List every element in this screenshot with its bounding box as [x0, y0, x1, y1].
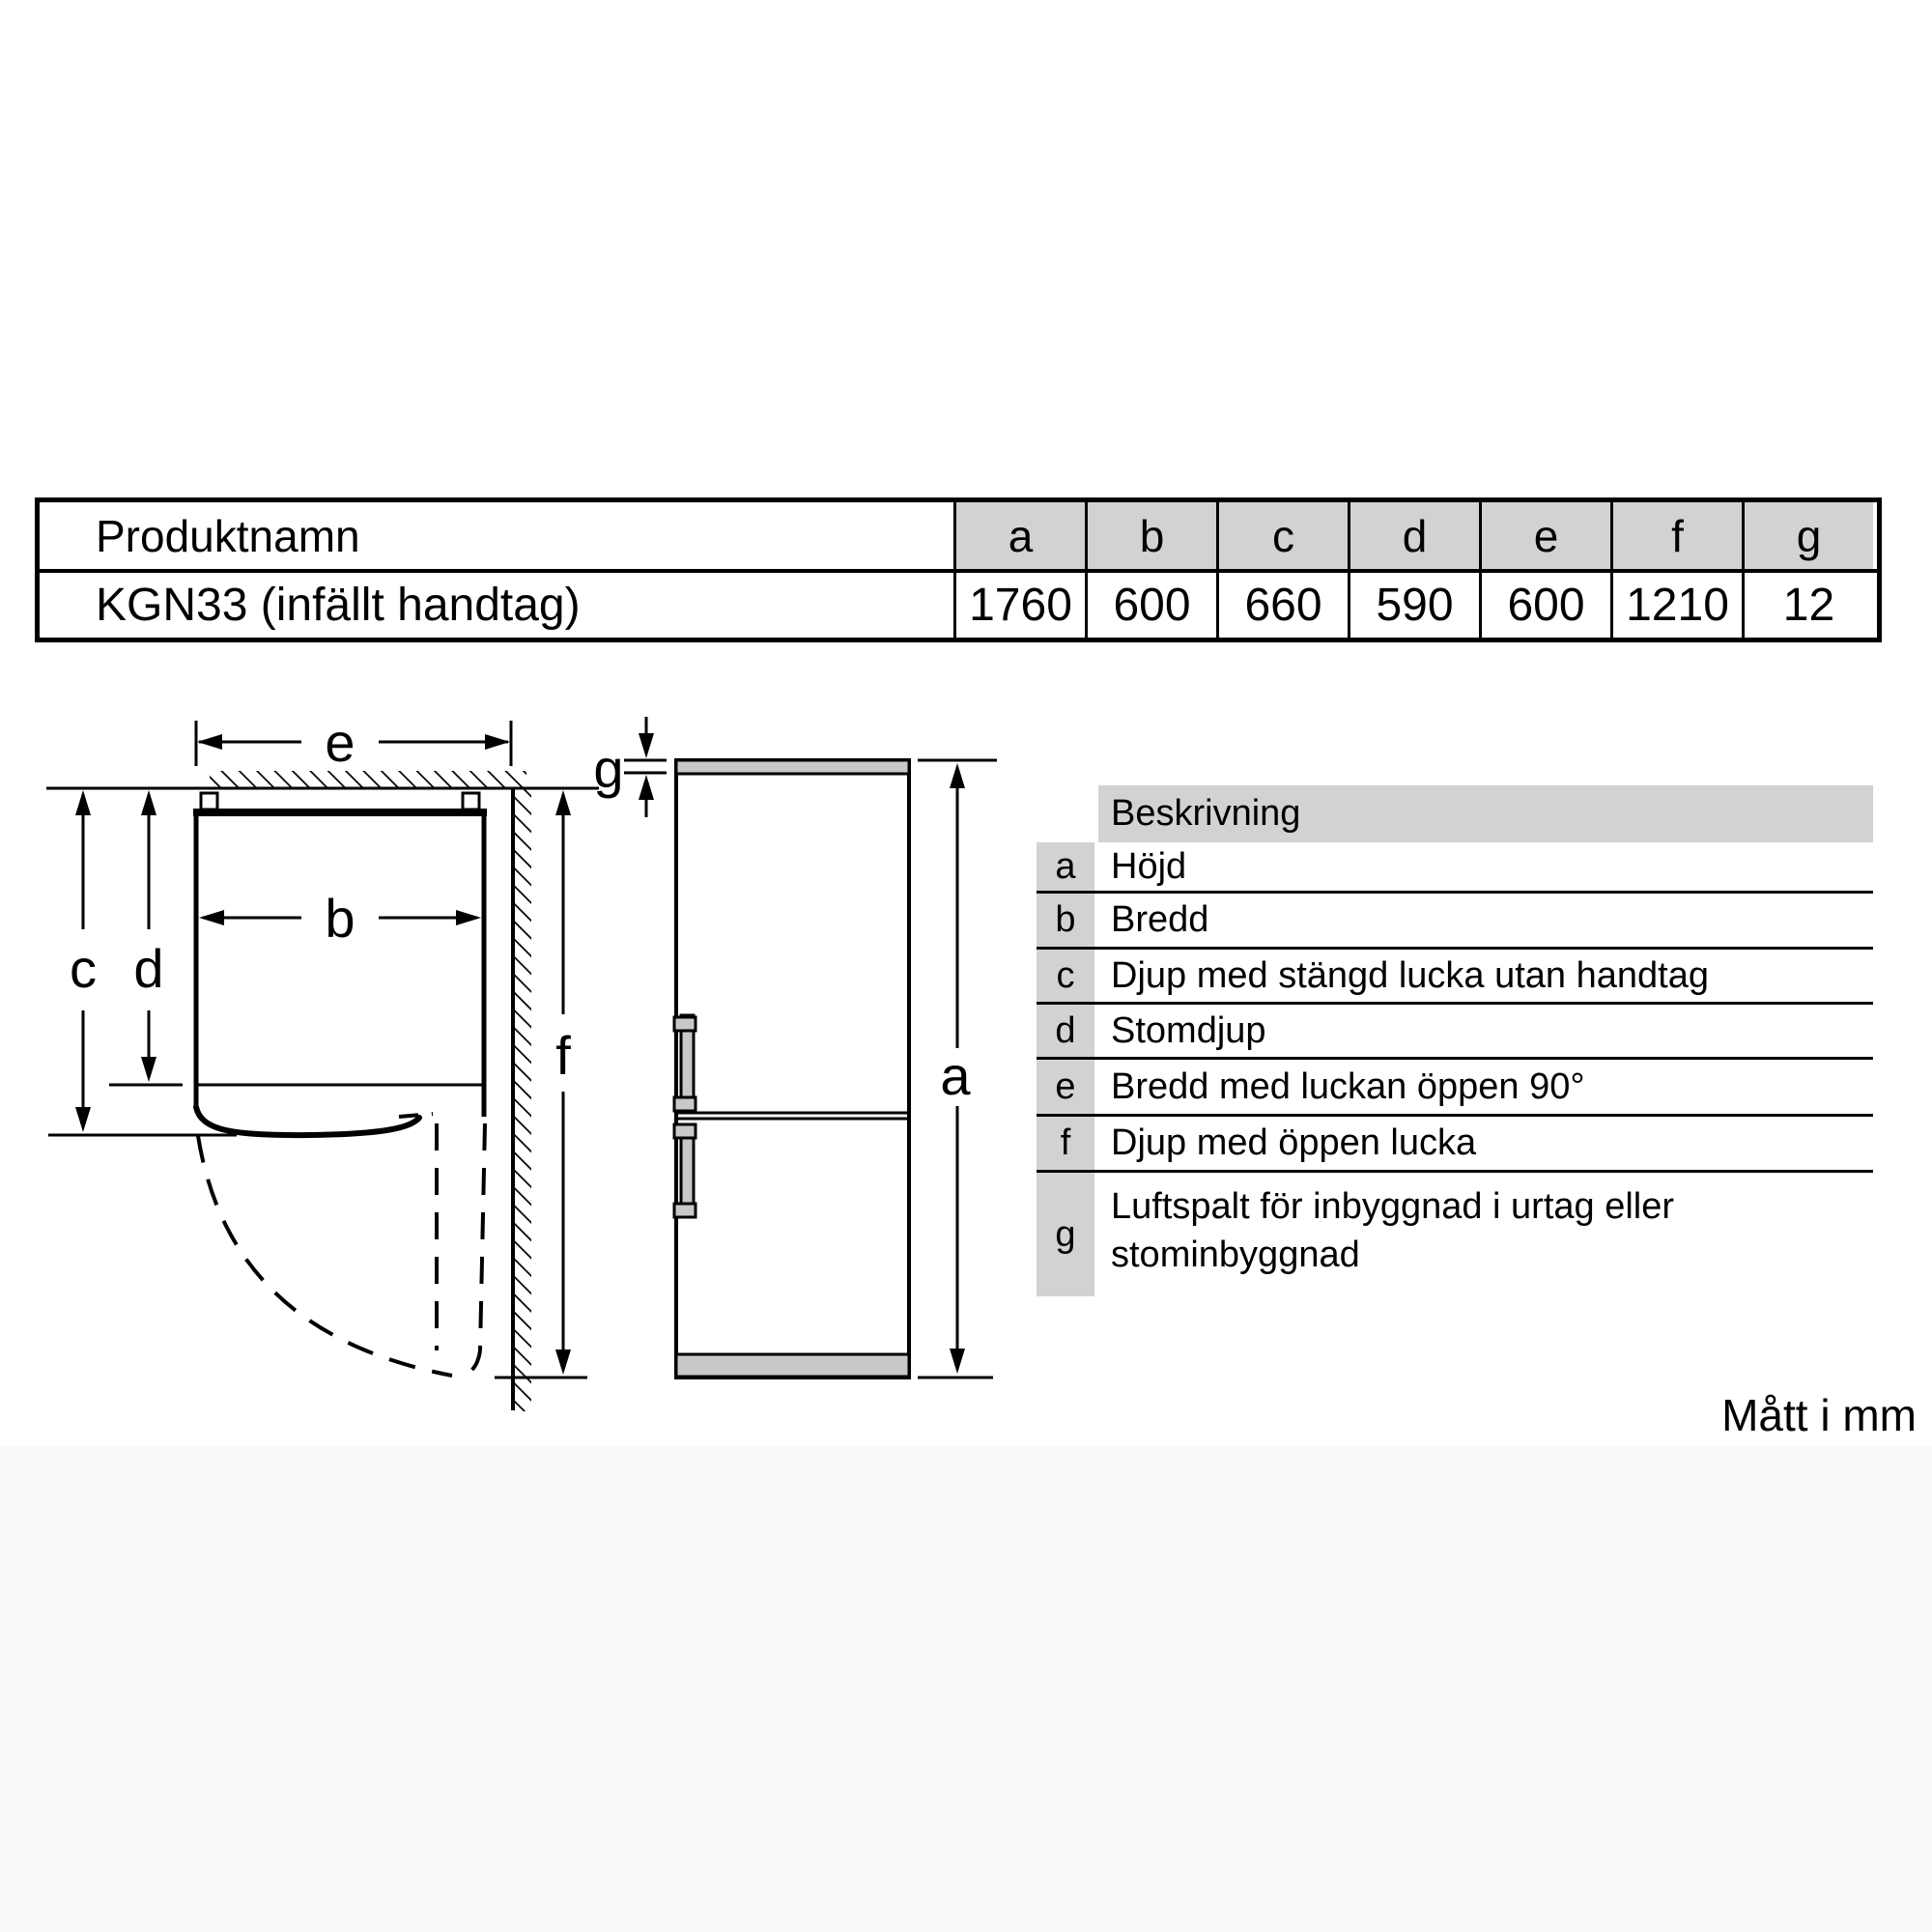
fridge-outline: [676, 760, 909, 1378]
dim-label-c: c: [70, 938, 97, 999]
e-arrowhead-right: [485, 734, 510, 750]
front-view-diagram: g a: [593, 717, 997, 1378]
hinge-right: [463, 793, 479, 810]
legend-table: Beskrivning a Höjd b Bredd c Djup med st…: [1037, 785, 1873, 1296]
legend-key-d: d: [1037, 1005, 1094, 1057]
door-front-dashed-segment: [399, 1114, 433, 1117]
legend-desc-a: Höjd: [1098, 846, 1873, 888]
door-front-curve: [196, 1107, 419, 1135]
legend-header-label: Beskrivning: [1098, 785, 1873, 842]
legend-header-key-spacer: [1037, 785, 1094, 842]
c-arrowhead-bottom: [75, 1107, 91, 1132]
open-door-back-dashed: [480, 1123, 485, 1350]
air-gap-bar: [676, 760, 909, 774]
legend-key-c: c: [1037, 950, 1094, 1002]
legend-desc-d: Stomdjup: [1098, 1010, 1873, 1052]
b-arrowhead-left: [199, 910, 224, 925]
open-door-bottom-dashed: [462, 1350, 480, 1376]
dim-label-f: f: [555, 1025, 571, 1086]
a-arrowhead-top: [950, 763, 965, 788]
lower-handle-bracket-top: [674, 1124, 696, 1138]
d-arrowhead-bottom: [141, 1057, 156, 1082]
dim-label-d: d: [133, 938, 163, 999]
plinth-bar: [676, 1354, 909, 1377]
door-swing-arc: [198, 1136, 452, 1376]
legend-desc-g: Luftspalt för inbyggnad i urtag eller st…: [1098, 1173, 1806, 1293]
upper-handle-bracket-bottom: [674, 1097, 696, 1111]
legend-desc-e: Bredd med luckan öppen 90°: [1098, 1066, 1873, 1108]
legend-row-e: e Bredd med luckan öppen 90°: [1037, 1060, 1873, 1117]
legend-desc-b: Bredd: [1098, 899, 1873, 941]
legend-row-g: g Luftspalt för inbyggnad i urtag eller …: [1037, 1173, 1873, 1296]
upper-handle-bracket-top: [674, 1017, 696, 1031]
f-arrowhead-top: [555, 790, 571, 815]
lower-handle-bracket-bottom: [674, 1204, 696, 1217]
legend-row-c: c Djup med stängd lucka utan handtag: [1037, 950, 1873, 1005]
f-arrowhead-bottom: [555, 1350, 571, 1375]
legend-row-d: d Stomdjup: [1037, 1005, 1873, 1060]
b-arrowhead-right: [456, 910, 481, 925]
e-arrowhead-left: [197, 734, 222, 750]
c-arrowhead-top: [75, 790, 91, 815]
units-note: Mått i mm: [1546, 1389, 1917, 1441]
dim-label-e: e: [325, 712, 355, 773]
top-view-diagram: e b c d f: [46, 712, 599, 1411]
legend-row-f: f Djup med öppen lucka: [1037, 1117, 1873, 1173]
legend-key-f: f: [1037, 1117, 1094, 1170]
legend-key-b: b: [1037, 894, 1094, 947]
legend-row-a: a Höjd: [1037, 842, 1873, 894]
g-arrowhead-up: [639, 775, 654, 800]
ceiling-hatch: [210, 771, 526, 788]
dim-label-g: g: [593, 738, 623, 799]
dim-label-a: a: [940, 1045, 971, 1106]
d-arrowhead-top: [141, 790, 156, 815]
wall-hatch: [513, 788, 531, 1411]
legend-key-e: e: [1037, 1060, 1094, 1114]
legend-key-g: g: [1037, 1173, 1094, 1296]
legend-desc-c: Djup med stängd lucka utan handtag: [1098, 955, 1873, 997]
dim-label-b: b: [325, 888, 355, 949]
legend-row-b: b Bredd: [1037, 894, 1873, 950]
legend-desc-f: Djup med öppen lucka: [1098, 1122, 1873, 1164]
a-arrowhead-bottom: [950, 1349, 965, 1374]
g-arrowhead-down: [639, 733, 654, 758]
legend-key-a: a: [1037, 842, 1094, 891]
legend-header-row: Beskrivning: [1037, 785, 1873, 842]
hinge-left: [201, 793, 217, 810]
dimension-drawing-page: Produktnamn a b c d e f g KGN33 (infällt…: [0, 0, 1932, 1932]
